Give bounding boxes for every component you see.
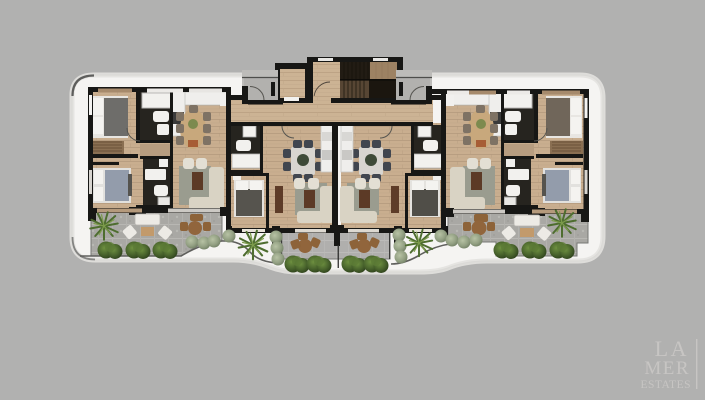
svg-text:ESTATES: ESTATES — [641, 379, 692, 391]
svg-text:MER: MER — [644, 358, 690, 379]
